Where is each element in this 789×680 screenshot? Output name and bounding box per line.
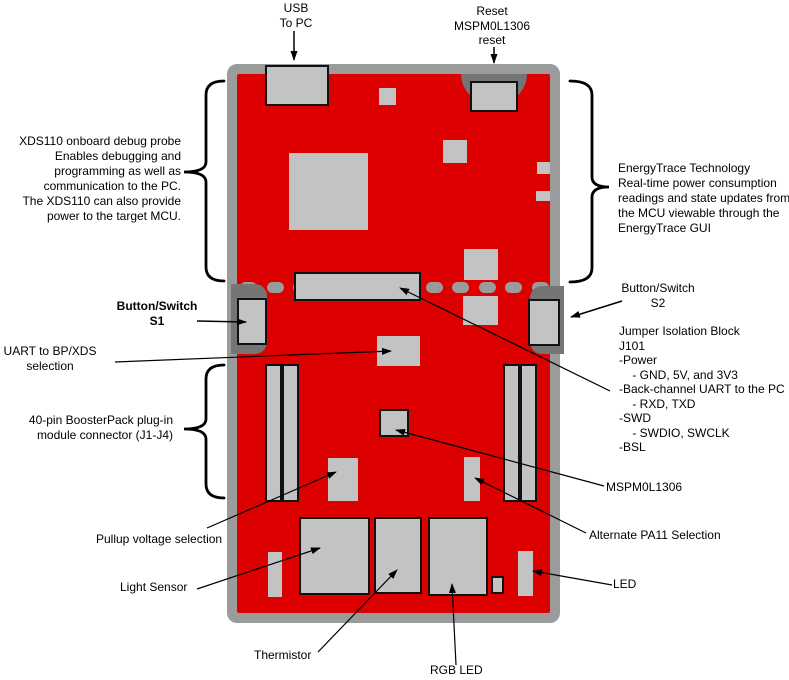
led-label: LED: [613, 577, 636, 592]
light-sensor-label: Light Sensor: [120, 580, 187, 595]
led: [518, 551, 533, 596]
usb-label: USB To PC: [280, 1, 313, 31]
isolation-dash: [505, 282, 522, 293]
isolation-dash: [452, 282, 469, 293]
pad-above-jumper-block: [464, 249, 498, 280]
s2-arrow: [571, 301, 622, 317]
thermistor-label: Thermistor: [254, 648, 311, 663]
boosterpack-left-strip-2: [282, 364, 299, 502]
pad-top-center: [379, 88, 396, 105]
xds110-description: XDS110 onboard debug probe Enables debug…: [16, 134, 181, 224]
alt-pa11-jumper: [464, 457, 480, 501]
launchpad-overview-diagram: USB To PC Reset MSPM0L1306 reset XDS110 …: [0, 0, 789, 680]
boosterpack-right-strip-2: [520, 364, 537, 502]
energytrace-brace: [570, 81, 609, 282]
boosterpack-brace: [184, 365, 224, 498]
pad-right-edge-1: [537, 162, 550, 174]
isolation-dash: [479, 282, 496, 293]
pad-bottom-left: [268, 552, 282, 597]
thermistor: [374, 517, 422, 594]
xds110-brace: [184, 81, 224, 281]
isolation-dash: [426, 282, 443, 293]
s2-button: [528, 299, 560, 346]
alt-pa11-label: Alternate PA11 Selection: [589, 528, 721, 543]
usb-connector: [265, 65, 329, 106]
boosterpack-label: 40-pin BoosterPack plug-in module connec…: [12, 413, 173, 443]
light-sensor: [299, 517, 370, 595]
uart-selection-label: UART to BP/XDS selection: [4, 344, 97, 374]
rgb-led-label: RGB LED: [430, 663, 483, 678]
pad-below-dashes: [463, 296, 498, 325]
button-s2-label: Button/Switch S2: [621, 281, 694, 311]
pad-mid-right: [443, 140, 467, 163]
isolation-dash: [267, 282, 284, 293]
boosterpack-left-strip-1: [265, 364, 282, 502]
pad-right-edge-2: [536, 191, 550, 201]
rgb-led: [428, 517, 488, 596]
jumper-block-j101: [294, 272, 421, 301]
mspm0l1306-label: MSPM0L1306: [606, 480, 682, 495]
reset-label: Reset MSPM0L1306 reset: [454, 4, 530, 48]
boosterpack-right-strip-1: [503, 364, 520, 502]
uart-selection-switch: [377, 336, 420, 366]
mspm0l1306-chip: [379, 409, 409, 437]
button-s1-label: Button/Switch S1: [117, 299, 198, 329]
rgb-led-pad: [491, 576, 504, 594]
pullup-voltage-jumper: [328, 458, 358, 501]
s1-button: [237, 298, 267, 345]
jumper-block-description: Jumper Isolation Block J101 -Power - GND…: [619, 324, 785, 455]
energytrace-description: EnergyTrace Technology Real-time power c…: [618, 161, 789, 236]
pullup-label: Pullup voltage selection: [96, 532, 222, 547]
reset-button: [470, 81, 518, 112]
xds110-chip: [289, 153, 368, 230]
